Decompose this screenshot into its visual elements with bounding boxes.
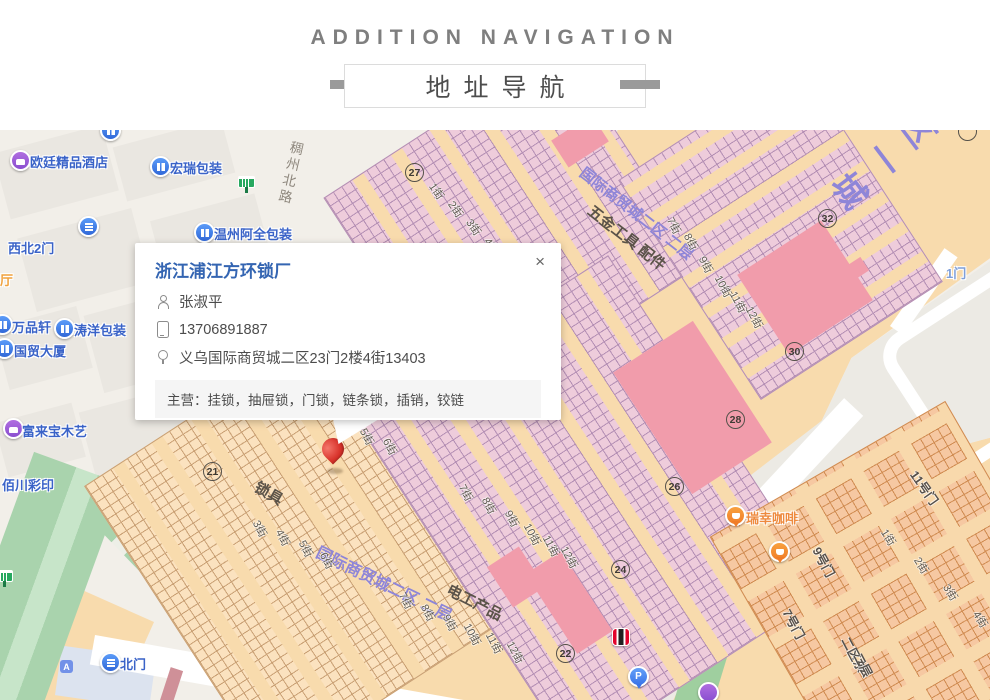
gate-poi-icon[interactable] xyxy=(100,652,121,673)
contact-name: 张淑平 xyxy=(179,291,223,312)
poi-label[interactable]: 北门 xyxy=(120,654,146,673)
poi-label[interactable]: 国贸大厦 xyxy=(14,341,66,360)
building-poi-icon[interactable] xyxy=(54,318,75,339)
poi-label[interactable]: 欧廷精品酒店 xyxy=(30,152,108,171)
phone-row: 13706891887 xyxy=(155,321,541,338)
phone-number: 13706891887 xyxy=(179,322,268,338)
parking-icon[interactable]: P xyxy=(628,666,649,687)
poi-label[interactable]: 厅 xyxy=(0,270,13,289)
hotel-glyph xyxy=(16,159,25,165)
building-glyph xyxy=(1,345,9,353)
gate-number-badge: 26 xyxy=(665,477,684,496)
main-products-bar: 主营：挂锁，抽屉锁，门锁，链条锁，插销，铰链 xyxy=(155,380,541,418)
header-english-title: ADDITION NAVIGATION xyxy=(0,26,990,50)
person-icon xyxy=(155,295,171,308)
popup-title: 浙江浦江方环锁厂 xyxy=(155,257,541,282)
gate-number-badge: 24 xyxy=(611,560,630,579)
building-poi-icon[interactable] xyxy=(150,156,171,177)
phone-icon xyxy=(155,321,171,338)
poi-label[interactable]: 万品轩 xyxy=(12,317,51,336)
building-poi-icon[interactable] xyxy=(194,222,215,243)
road-name-label: 稠州北路 xyxy=(272,139,306,208)
building-glyph xyxy=(201,229,209,237)
poi-marker-partial xyxy=(698,682,719,700)
bus-stop-icon xyxy=(0,570,13,582)
pin-shadow xyxy=(327,468,343,474)
poi-label[interactable]: 佰川彩印 xyxy=(2,475,54,494)
page: ADDITION NAVIGATION 地址导航 xyxy=(0,0,990,700)
poi-label[interactable]: 宏瑞包装 xyxy=(170,158,222,177)
header-title-box: 地址导航 xyxy=(344,64,646,108)
building-glyph xyxy=(61,325,69,333)
poi-label[interactable]: 1门 xyxy=(946,263,966,282)
location-pin-icon xyxy=(155,350,171,365)
section-header: ADDITION NAVIGATION 地址导航 xyxy=(0,0,990,130)
bus-stop-icon xyxy=(238,176,255,188)
gate-number-badge: 28 xyxy=(726,410,745,429)
close-icon[interactable]: × xyxy=(535,253,545,270)
poi-label[interactable]: 富来宝木艺 xyxy=(22,421,87,440)
address-text: 义乌国际商贸城二区23门2楼4街13403 xyxy=(179,347,426,368)
hotel-glyph xyxy=(9,427,18,433)
cup-icon xyxy=(776,549,784,555)
hotel-poi-icon[interactable] xyxy=(10,150,31,171)
poi-label[interactable]: 涛洋包装 xyxy=(74,320,126,339)
poi-label[interactable]: 温州阿全包装 xyxy=(214,224,292,243)
map-canvas[interactable]: 城一区 国际商贸城二区 二层 国际商贸城二区 二层 五金工具 配件 锁具 电工产… xyxy=(0,130,990,700)
coffee-glyph xyxy=(732,513,740,519)
road-badge-a: A xyxy=(60,660,73,673)
gate-number-badge: 22 xyxy=(556,644,575,663)
coffee-poi-icon[interactable] xyxy=(725,505,746,526)
header-chinese-title: 地址导航 xyxy=(412,68,577,104)
building-icon xyxy=(107,130,115,135)
gate-glyph xyxy=(85,223,93,231)
contact-row: 张淑平 xyxy=(155,291,541,312)
building-glyph xyxy=(0,321,7,329)
poi-label[interactable]: 瑞幸咖啡 xyxy=(746,508,798,527)
hotel-poi-icon[interactable] xyxy=(3,418,24,439)
address-row: 义乌国际商贸城二区23门2楼4街13403 xyxy=(155,347,541,368)
road-badge-letter: A xyxy=(63,662,70,672)
poi-label[interactable]: 西北2门 xyxy=(8,238,54,257)
gate-glyph xyxy=(107,659,115,667)
header-right-dash xyxy=(620,80,660,89)
building-glyph xyxy=(157,163,165,171)
coffee-poi-icon[interactable] xyxy=(769,541,790,562)
map-building-block xyxy=(0,130,119,219)
parking-letter: P xyxy=(635,671,642,682)
gate-number-badge: 32 xyxy=(818,209,837,228)
gate-number-badge: 21 xyxy=(203,462,222,481)
gate-number-badge: 30 xyxy=(785,342,804,361)
kfc-icon[interactable] xyxy=(612,628,630,646)
gate-number-badge: 27 xyxy=(405,163,424,182)
info-popup: 浙江浦江方环锁厂 × 张淑平 13706891887 义乌国际商贸城二区23门2… xyxy=(135,243,561,420)
gate-poi-icon[interactable] xyxy=(78,216,99,237)
